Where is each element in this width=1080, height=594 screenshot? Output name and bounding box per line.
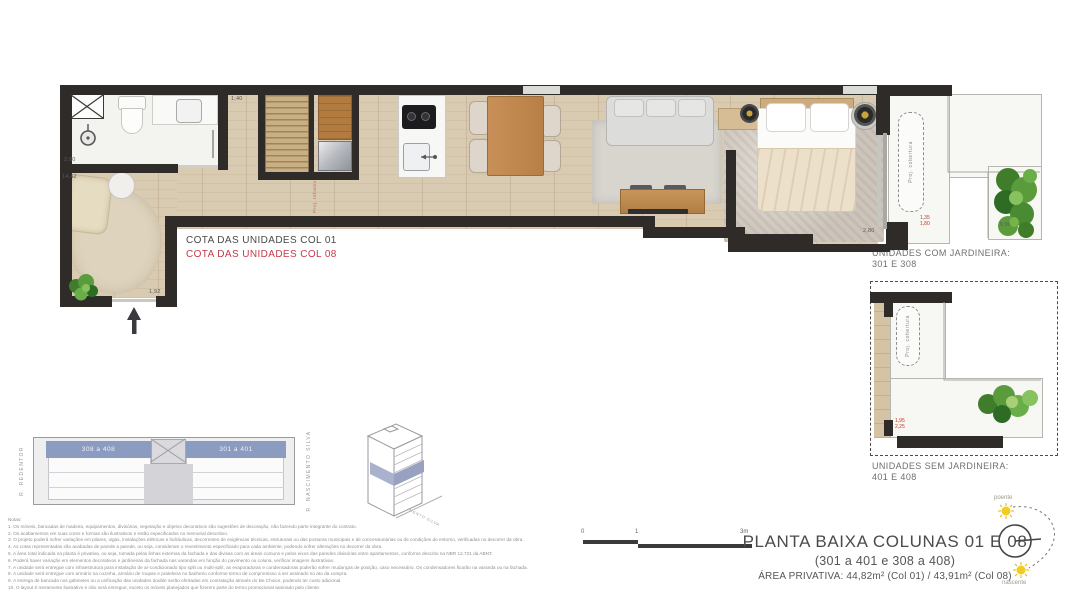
isometric-building xyxy=(368,424,442,518)
wall-bath-internal xyxy=(72,164,178,173)
dim-total-length: 14,42 xyxy=(62,174,77,180)
note-line: 3. O projeto poderá sofrer variações em … xyxy=(8,537,583,544)
isometric-floor-band xyxy=(370,462,394,486)
cota-col08-label: COTA DAS UNIDADES COL 08 xyxy=(186,249,337,260)
dim-balcony1-b: 1,80 xyxy=(920,222,930,228)
jardineira-without-line1: UNIDADES SEM JARDINEIRA: xyxy=(872,461,1009,472)
note-line: 4. As cotas representadas são acabadas d… xyxy=(8,544,583,551)
dim-bath-height: 2,80 xyxy=(64,157,76,163)
scale-tick-1: 1 xyxy=(635,529,638,535)
window-inset xyxy=(843,86,877,94)
bathroom-sink xyxy=(176,99,202,123)
key-plan: 308 a 408 301 a 401 xyxy=(33,437,295,505)
proj-cobertura-text: Proj. cobertura xyxy=(905,315,911,357)
tv-set xyxy=(628,209,688,214)
proj-cobertura-text: Proj. cobertura xyxy=(908,141,914,183)
jardineira-with-label: UNIDADES COM JARDINEIRA: 301 E 308 xyxy=(872,248,1010,270)
note-line: 8. A unidade será entregue com armário n… xyxy=(8,571,583,578)
detail-wood-strip xyxy=(874,302,890,438)
wall-bath-divider xyxy=(218,88,228,170)
shower-box xyxy=(70,94,104,119)
wall-left xyxy=(60,85,72,307)
key-plan-divider xyxy=(186,472,284,473)
wardrobe-closet xyxy=(265,94,309,176)
notes-block: Notas: 1. Os móveis, bancadas de madeira… xyxy=(8,517,583,592)
bed-blanket xyxy=(757,148,856,212)
proj-cobertura-label: Proj. cobertura xyxy=(896,306,920,366)
poente-label: poente xyxy=(994,495,1012,501)
wall-nook-right xyxy=(165,216,177,307)
cooktop-burner xyxy=(421,112,430,121)
proj-cobertura-label: Proj. cobertura xyxy=(898,112,924,212)
jardineira-without-label: UNIDADES SEM JARDINEIRA: 401 E 408 xyxy=(872,461,1009,483)
sun-poente-icon xyxy=(998,503,1014,519)
wall-utility-left xyxy=(258,92,265,176)
wall-segment xyxy=(884,303,893,317)
wall-bottom-left xyxy=(60,296,112,307)
washing-machine xyxy=(318,141,352,171)
title-block: PLANTA BAIXA COLUNAS 01 E 08 (301 a 401 … xyxy=(700,532,1070,582)
key-plan-divider xyxy=(186,487,284,488)
key-plan-core-lower xyxy=(144,464,193,504)
private-area-label: ÁREA PRIVATIVA: 44,82m² (Col 01) / 43,91… xyxy=(700,571,1070,582)
wall-segment xyxy=(884,420,893,436)
dim-balcony2-b: 2,25 xyxy=(895,425,905,431)
wall-top xyxy=(60,85,890,95)
dim-bedroom-width: 2,80 xyxy=(863,228,875,234)
bath-door-threshold xyxy=(178,165,218,168)
bedside-lamp-right xyxy=(854,104,876,126)
cooktop-burner xyxy=(407,112,416,121)
wall-utility-right xyxy=(352,92,359,180)
key-plan-divider xyxy=(48,487,151,488)
note-line: 1. Os móveis, bancadas de madeira, equip… xyxy=(8,524,583,531)
note-line: 7. A unidade será entregue com infraestr… xyxy=(8,565,583,572)
scale-bar-segment-1 xyxy=(583,540,638,544)
wall-segment xyxy=(870,292,952,303)
laundry-cabinet xyxy=(318,95,352,140)
note-line: 9. A entrega de bancada nos gabinetes ou… xyxy=(8,578,583,585)
key-plan-unit-left: 308 a 408 xyxy=(46,441,151,458)
wall-bedroom-partition xyxy=(726,150,736,238)
note-line: 2. Os acabamentos em suas cores e formas… xyxy=(8,531,583,538)
wall-bedroom-right xyxy=(876,85,890,135)
wall-corridor-bottom xyxy=(165,216,655,227)
sofa-back-cushion xyxy=(678,99,706,117)
key-plan-core xyxy=(151,439,186,464)
detail-terrace-lower xyxy=(890,378,1043,438)
bedside-lamp-left xyxy=(740,104,759,123)
street-nascimento-label: R. NASCIMENTO SILVA xyxy=(306,426,312,516)
wall-balcony-top xyxy=(890,85,952,96)
dining-chair xyxy=(469,139,488,173)
window-inset xyxy=(523,86,560,94)
toilet-bowl xyxy=(121,108,143,134)
key-plan-band-right: 301 a 401 xyxy=(186,441,286,458)
dining-table xyxy=(487,96,544,176)
key-plan-unit-right-interior xyxy=(186,457,284,500)
dining-chair xyxy=(543,140,561,172)
cota-col01-label: COTA DAS UNIDADES COL 01 xyxy=(186,235,337,246)
pillow xyxy=(766,103,806,132)
dim-entry-width: 1,92 xyxy=(149,289,161,295)
wall-segment xyxy=(897,436,1003,448)
wall-bedroom-bottom-b xyxy=(800,244,890,252)
door-threshold xyxy=(112,299,156,302)
floor-plan-sheet: Proj. cobertura Proj. cobertura 308 a 40… xyxy=(0,0,1080,594)
wall-utility-bottom xyxy=(258,172,359,180)
key-plan-unit-left-interior xyxy=(48,457,151,500)
jardineira-without-line2: 401 E 408 xyxy=(872,472,1009,483)
note-line: 6. Poderá haver variação em elementos de… xyxy=(8,558,583,565)
dining-chair xyxy=(543,105,561,137)
key-plan-divider xyxy=(48,472,151,473)
wall-closet-divider xyxy=(309,94,314,174)
entry-arrow-icon xyxy=(127,307,141,334)
street-redentor-label: R. REDENTOR xyxy=(19,441,25,501)
sofa-back-cushion xyxy=(646,99,676,117)
sheet-subtitle: (301 a 401 e 308 a 408) xyxy=(700,554,1070,568)
proj-rebaixo-text: Proj. rebaixo xyxy=(312,180,317,213)
sheet-title: PLANTA BAIXA COLUNAS 01 E 08 xyxy=(700,532,1070,552)
kitchen-sink xyxy=(403,143,430,171)
note-line: 10. O layout é meramente ilustrativo e n… xyxy=(8,585,583,592)
proj-rebaixo-label: Proj. rebaixo xyxy=(312,180,324,224)
dim-hall-width: 1,40 xyxy=(231,96,243,102)
side-table-round xyxy=(108,172,135,199)
pillow xyxy=(810,103,849,132)
jardineira-with-line2: 301 E 308 xyxy=(872,259,1010,270)
dining-chair xyxy=(469,101,488,135)
wall-balcony-stub xyxy=(886,222,908,250)
notes-header: Notas: xyxy=(8,517,583,524)
dim-balcony1-c: 0,95 xyxy=(1000,222,1011,228)
key-plan-band-left: 308 a 408 xyxy=(46,441,151,458)
key-plan-unit-right: 301 a 401 xyxy=(186,441,286,458)
sofa-back-cushion xyxy=(614,99,644,117)
scale-tick-0: 0 xyxy=(581,529,584,535)
note-line: 5. A área total indicada na planta é pri… xyxy=(8,551,583,558)
balcony-planter-strip xyxy=(988,166,1042,240)
